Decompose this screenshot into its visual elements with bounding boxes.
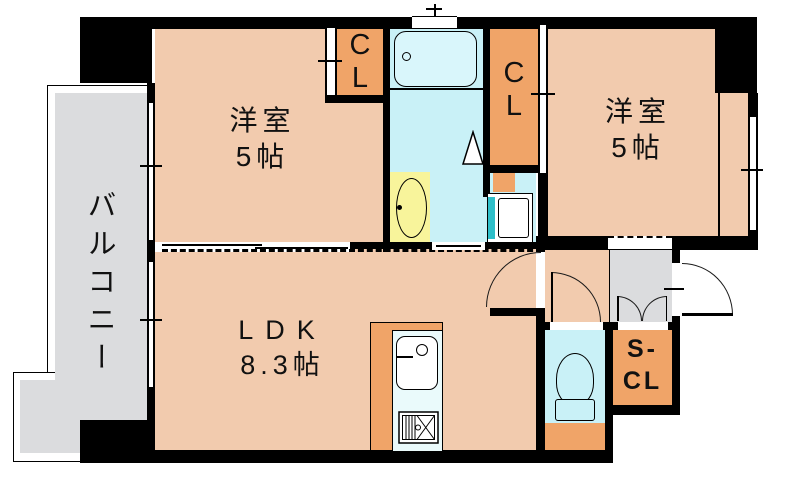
wall-toilet-right [605,330,613,460]
bedroom2-window-mark [741,169,763,171]
wall-entry-right-top [672,250,680,263]
vanity-faucet [397,205,402,210]
closet1-line2: L [337,62,383,95]
washing-machine-inner [498,198,529,238]
washroom-door-leaf [436,245,481,247]
ldk-label: LDK 8.3帖 [190,313,375,383]
ldk-window-mark [140,319,162,321]
shoe-closet-line2: CL [613,365,672,397]
wall-corner-topleft [80,17,152,83]
gas-stove [398,411,439,444]
wall-mid-vertical [383,25,390,252]
front-door-mark [664,288,684,290]
wall-left-a [147,83,155,103]
bath-window-mark-h [426,8,442,10]
wall-corner-topright [715,17,757,93]
bedroom1-size: 5帖 [170,139,355,175]
ldk-window [147,262,155,387]
front-door-leaf [682,313,733,316]
toilet-door-leaf [551,272,553,322]
bedroom2-size: 5帖 [558,130,718,166]
wall-band-b [485,242,536,249]
wall-left-b [147,240,155,262]
closet2-door [538,25,548,173]
ldk-boundary-dashed-line [162,249,542,252]
kitchen-sink-drain [416,344,428,356]
ldk-size: 8.3帖 [190,348,375,383]
balcony-floor-step2 [20,420,80,453]
kitchen-faucet [396,356,413,358]
front-door-arc [682,263,733,315]
bath-window [412,16,457,29]
closet2-line2: L [490,90,538,123]
bedroom2-recess-line [718,93,720,236]
closet1-line1: C [337,29,383,62]
wall-bath-right [483,25,490,197]
shoe-closet-leaf-left [617,296,619,321]
floor-plan: 洋室 5帖 洋室 5帖 LDK 8.3帖 バルコニー C L C L S- CL [0,0,786,485]
wall-kitchen-nook [490,308,543,316]
closet2-line1: C [490,57,538,90]
shoe-closet-door-gap [618,322,668,330]
bathtub-drain [402,52,411,61]
bedroom2-window [748,117,758,230]
shoe-closet-line1: S- [613,333,672,365]
closet2-label: C L [490,57,538,123]
ldk-name: LDK [190,313,375,348]
wall-scl-bottom [605,405,680,415]
bedroom1-name: 洋室 [170,103,355,139]
closet1-label: C L [337,29,383,95]
washroom-corner-post [493,170,515,192]
balcony-label: バルコニー [84,172,120,397]
toilet-floor-lower [545,423,605,450]
wall-right-a [748,93,758,117]
bedroom1-label: 洋室 5帖 [170,103,355,175]
bedroom1-window-mark [140,165,162,167]
wall-x538 [538,173,548,245]
bath-window-mark-v [434,4,436,17]
washing-machine-accent [488,197,495,239]
toilet-door-gap [550,322,603,330]
wall-scl-right [672,315,680,415]
bedroom2-name: 洋室 [558,94,718,130]
bathroom-divider-line [390,88,483,90]
kitchen-sink [396,336,438,390]
bedroom2-label: 洋室 5帖 [558,94,718,166]
wall-bottom [80,450,613,463]
toilet-bowl [556,353,594,405]
shoe-closet-leaf-right [666,296,668,321]
wall-toilet-top-r [603,322,618,330]
shoe-closet-label: S- CL [613,333,672,397]
entry-bedroom2-slider [608,236,672,250]
bedroom1-window [147,103,155,240]
bedroom1-slider-leaf1 [162,244,262,246]
wall-closet1-bottom [325,95,390,103]
bathroom-door-wedge [461,130,485,166]
wall-entry-right-bottom [672,316,680,322]
toilet-tank [555,399,595,421]
wall-band-a [350,242,432,249]
wall-toilet-left [536,308,545,460]
